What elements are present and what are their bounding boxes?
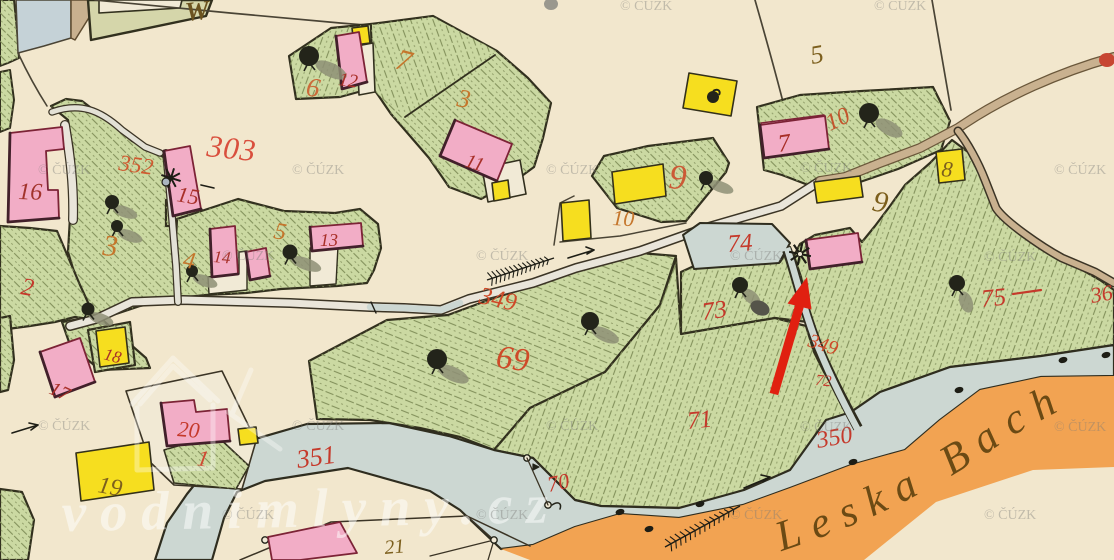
svg-text:© ČÚZK: © ČÚZK xyxy=(620,0,672,14)
svg-text:36: 36 xyxy=(1088,279,1114,308)
svg-text:© ČÚZK: © ČÚZK xyxy=(730,247,782,264)
svg-text:75: 75 xyxy=(980,284,1008,313)
svg-text:72: 72 xyxy=(815,372,832,390)
svg-text:© ČÚZK: © ČÚZK xyxy=(730,506,782,523)
svg-text:© ČÚZK: © ČÚZK xyxy=(38,417,90,434)
svg-text:© ČÚZK: © ČÚZK xyxy=(1054,418,1106,435)
svg-text:© ČÚZK: © ČÚZK xyxy=(800,418,852,435)
svg-text:16: 16 xyxy=(18,179,43,206)
svg-text:© ČÚZK: © ČÚZK xyxy=(1054,161,1106,178)
svg-text:© ČÚZK: © ČÚZK xyxy=(984,248,1036,265)
svg-text:© ČÚZK: © ČÚZK xyxy=(546,161,598,178)
svg-text:10: 10 xyxy=(612,205,635,231)
svg-text:© ČÚZK: © ČÚZK xyxy=(222,247,274,264)
svg-text:© ČÚZK: © ČÚZK xyxy=(874,0,926,14)
svg-text:© ČÚZK: © ČÚZK xyxy=(222,506,274,523)
svg-text:3: 3 xyxy=(100,229,119,263)
svg-text:13: 13 xyxy=(320,230,338,250)
svg-text:73: 73 xyxy=(700,296,729,326)
svg-text:© ČÚZK: © ČÚZK xyxy=(38,161,90,178)
svg-text:© ČÚZK: © ČÚZK xyxy=(546,417,598,434)
svg-text:© ČÚZK: © ČÚZK xyxy=(476,247,528,264)
svg-text:352: 352 xyxy=(116,150,155,180)
svg-text:15: 15 xyxy=(175,181,201,209)
svg-text:71: 71 xyxy=(686,406,714,435)
svg-text:303: 303 xyxy=(204,128,258,168)
svg-text:21: 21 xyxy=(384,535,406,559)
svg-text:20: 20 xyxy=(177,416,201,443)
svg-text:5: 5 xyxy=(808,39,826,70)
svg-text:8: 8 xyxy=(941,156,954,182)
svg-text:© ČÚZK: © ČÚZK xyxy=(292,417,344,434)
svg-text:© ČÚZK: © ČÚZK xyxy=(476,506,528,523)
svg-text:© ČÚZK: © ČÚZK xyxy=(984,506,1036,523)
svg-text:© ČÚZK: © ČÚZK xyxy=(292,161,344,178)
svg-text:351: 351 xyxy=(294,440,338,474)
svg-text:12: 12 xyxy=(337,69,359,93)
svg-text:9: 9 xyxy=(667,157,688,197)
svg-text:69: 69 xyxy=(494,339,532,379)
svg-text:© ČÚZK: © ČÚZK xyxy=(800,159,852,176)
svg-text:W: W xyxy=(183,0,212,27)
